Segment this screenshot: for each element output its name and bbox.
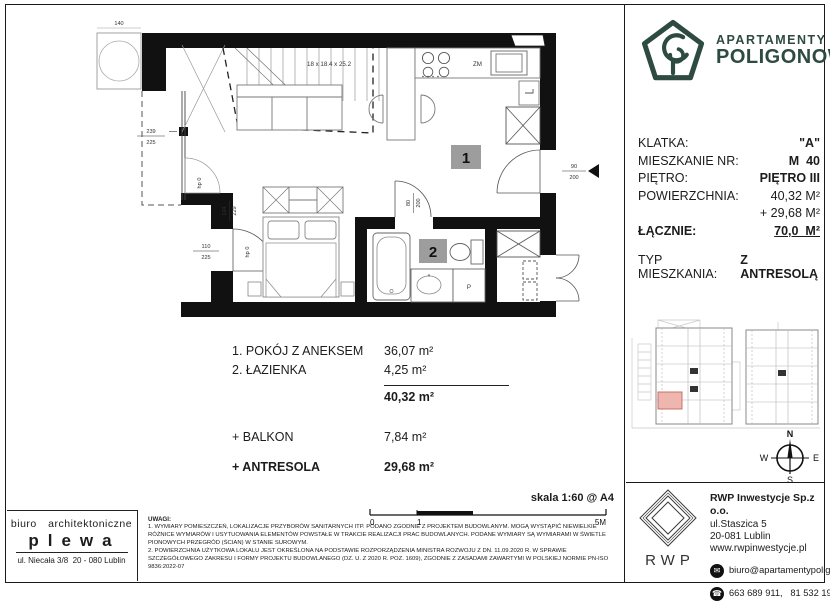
chair [369,95,383,123]
compass-rose-icon: N W E S [758,428,822,484]
svg-text:P: P [467,284,471,291]
developer-company: RWP Inwestycje Sp.z o.o. [710,492,822,518]
entrance-arrow-icon [588,164,599,178]
window-wall [182,91,185,200]
svg-text:225: 225 [201,255,210,261]
note-1: 1. WYMIARY POMIESZCZEŃ, LOKALIZACJE PRZY… [148,524,616,548]
sofa [237,85,342,130]
svg-text:124: 124 [222,206,228,215]
room-area: 4,25 m² [384,363,509,377]
developer-logo-text: RWP [636,552,704,569]
room-row: 2. ŁAZIENKA 4,25 m² [232,363,522,377]
developer-city: 20-081 Lublin [710,531,822,543]
room-list: 1. POKÓJ Z ANEKSEM 36,07 m² 2. ŁAZIENKA … [232,344,522,479]
svg-text:200: 200 [416,198,422,207]
room-row: 1. POKÓJ Z ANEKSEM 36,07 m² [232,344,522,358]
window-dimension: 239 225 [137,129,177,146]
developer-street: ul.Staszica 5 [710,519,822,531]
brand-line2: POLIGONOWA [716,47,830,68]
note-2: 2. POWIERZCHNIA UŻYTKOWA LOKALU JEST OKR… [148,548,616,572]
rwp-diamond-logo-icon [635,489,701,547]
building-b [746,330,818,424]
toilet [450,240,483,264]
svg-text:W: W [760,453,769,463]
top-wall-window [511,35,545,46]
detail-row: + 29,68 M² [638,206,820,220]
svg-text:200: 200 [569,175,578,181]
brand-pentagon-logo-icon [638,16,708,86]
svg-text:S: S [787,475,793,484]
washbasin [411,269,453,302]
total-area: 40,32 m² [384,385,509,404]
room-name: 2. ŁAZIENKA [232,363,384,377]
svg-text:140: 140 [114,21,123,27]
sink-icon [491,51,527,75]
entrance-door: 90 200 [497,150,599,193]
highlighted-unit [658,392,682,409]
svg-text:90: 90 [571,164,577,170]
developer-email[interactable]: biuro@apartamentypoligonowa.pl [729,565,830,576]
apartment-details: KLATKA: "A" MIESZKANIE NR: M 40 PIĘTRO: … [638,136,820,281]
bed [263,217,339,297]
developer-phone-row: ☎ 663 689 911, 81 532 19 66 [710,587,822,601]
mezzanine-row: + ANTRESOLA 29,68 m² [232,460,522,474]
detail-row: POWIERZCHNIA: 40,32 M² [638,189,820,203]
developer-info: RWP Inwestycje Sp.z o.o. ul.Staszica 5 2… [710,492,822,601]
room-1-badge: 1 [451,145,481,169]
brand-header: APARTAMENTY POLIGONOWA [638,16,830,86]
svg-text:1: 1 [462,150,470,167]
bathtub [373,233,410,300]
scale-label: skala 1:60 @ A4 [414,492,614,504]
room-2-badge: 2 [419,239,447,263]
room-name: 1. POKÓJ Z ANEKSEM [232,344,384,358]
developer-email-row: ✉ biuro@apartamentypoligonowa.pl [710,564,822,578]
developer-logo: RWP [632,489,704,569]
detail-row-total: ŁĄCZNIE: 70,0 M² [638,224,820,238]
window-opening-arc: hp 0 [185,158,220,193]
developer-website[interactable]: www.rwpinwestycje.pl [710,543,822,555]
svg-text:hp 0: hp 0 [245,247,251,258]
room-name: + BALKON [232,430,384,444]
architect-line: biuro architektoniczne [7,518,137,530]
site-key-plan [628,316,824,434]
email-icon: ✉ [710,564,724,578]
double-door [556,255,579,301]
svg-text:229: 229 [232,206,238,215]
balcony-outline [142,91,181,205]
svg-text:225: 225 [146,140,155,146]
shaft-icon [506,107,540,144]
fridge-icon [519,81,539,105]
room-area: 29,68 m² [384,460,509,474]
room-area: 36,07 m² [384,344,509,358]
detail-row: PIĘTRO: PIĘTRO III [638,171,820,185]
svg-text:2: 2 [429,244,437,261]
wardrobe [263,187,343,213]
svg-text:80: 80 [406,200,412,206]
svg-text:18 x 18.4 x 25.2: 18 x 18.4 x 25.2 [307,61,352,68]
developer-phones: 663 689 911, 81 532 19 66 [729,588,830,599]
hall-closet [523,282,537,300]
room-name: + ANTRESOLA [232,460,384,474]
phone-icon: ☎ [710,587,724,601]
svg-text:N: N [787,429,794,439]
balcony-row: + BALKON 7,84 m² [232,430,522,444]
detail-row: KLATKA: "A" [638,136,820,150]
dishwasher-label: ZM [473,61,482,68]
floor-plan-sheet: { "brand": { "line1": "APARTAMENTY", "li… [0,0,830,587]
chair [421,95,435,123]
hall-wardrobe [497,231,540,257]
apartment-type-row: TYP MIESZKANIA: Z ANTRESOLĄ [638,253,820,281]
room-area: 7,84 m² [384,430,509,444]
nightstand [248,282,261,296]
svg-text:E: E [813,453,819,463]
svg-text:hp 0: hp 0 [197,178,203,189]
structural-column: 140 [97,21,141,89]
kitchen-island [387,48,415,140]
building-a [656,328,732,424]
bathroom-door: 80 200 [395,181,431,217]
architect-box: biuro architektoniczne plewa ul. Niecała… [7,510,138,581]
architect-name: plewa [13,531,137,551]
notes-block: UWAGI: 1. WYMIARY POMIESZCZEŃ, LOKALIZAC… [148,516,616,572]
washing-machine: P [453,269,485,302]
svg-text:239: 239 [146,129,155,135]
kitchen-counter: ZM [415,48,540,78]
svg-text:110: 110 [202,244,211,250]
architect-address: ul. Niecała 3/8 20 - 080 Lublin [16,552,128,565]
apartment-floor-plan: 140 18 x 18.4 x 25.2 [85,5,630,345]
hall-closet [523,261,537,279]
nightstand [341,282,354,296]
detail-row: MIESZKANIE NR: M 40 [638,154,820,168]
